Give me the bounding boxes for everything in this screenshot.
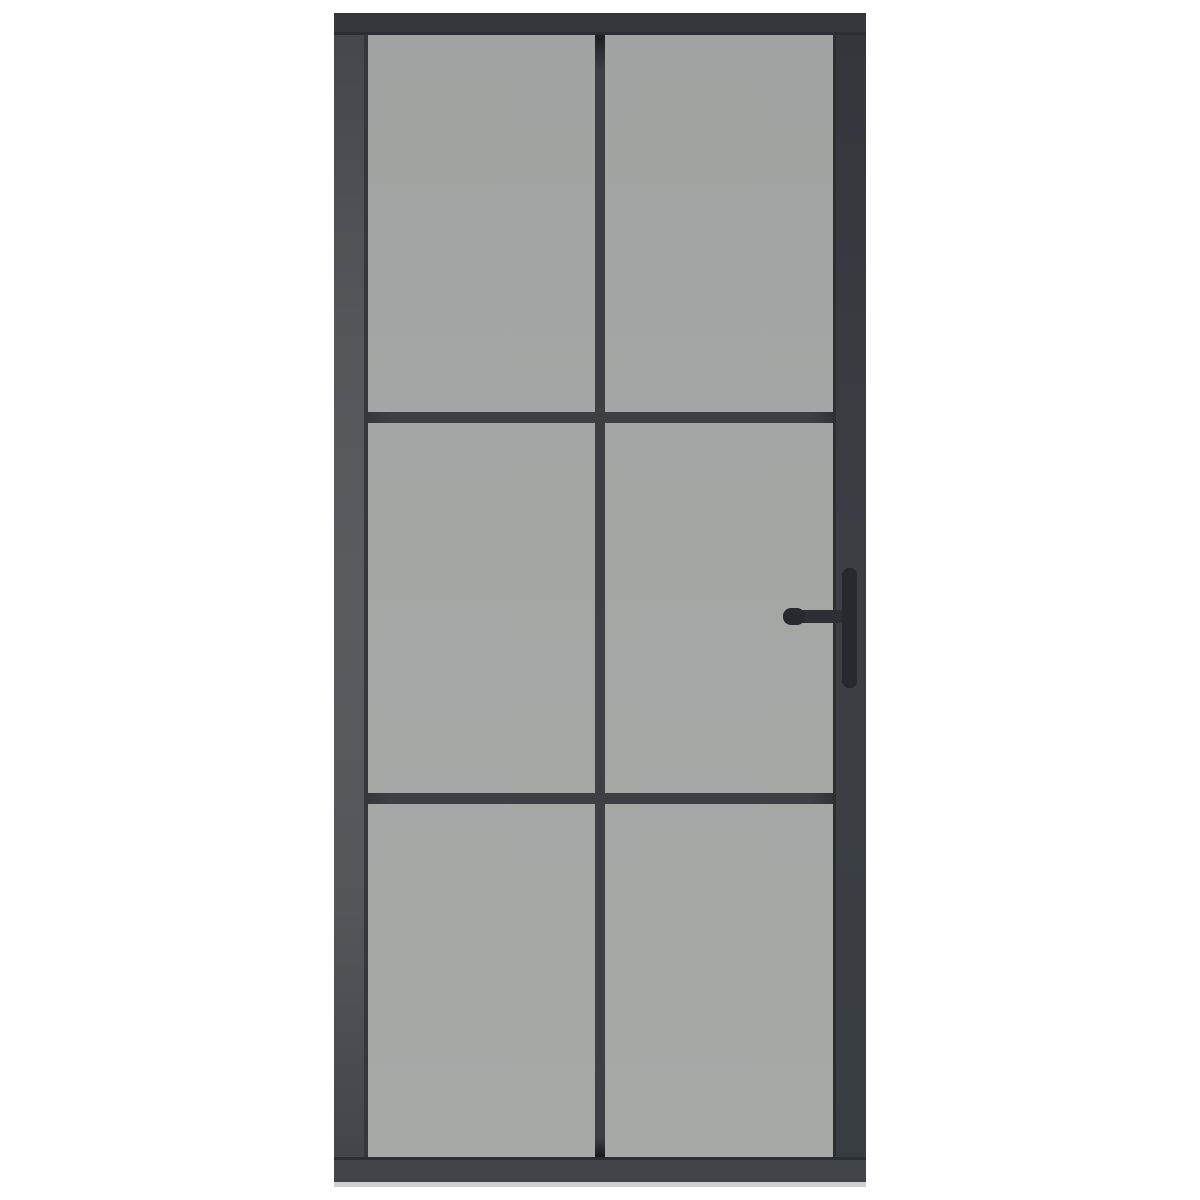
door-frame-left xyxy=(334,35,368,1157)
muntin-horizontal-divider-1 xyxy=(368,412,833,423)
muntin-horizontal-divider-2 xyxy=(368,793,833,804)
glass-pane xyxy=(368,35,595,412)
door-frame-bottom xyxy=(334,1157,866,1182)
door-handle-pull-bar xyxy=(842,568,857,688)
door-bottom-edge-highlight xyxy=(334,1182,866,1187)
glass-pane xyxy=(368,423,595,793)
product-image xyxy=(0,0,1200,1200)
glass-pane xyxy=(605,35,833,412)
door-handle-lever-tip xyxy=(783,608,805,625)
glass-door xyxy=(334,13,866,1182)
glass-pane xyxy=(368,804,595,1157)
muntin-vertical-divider xyxy=(595,35,605,1157)
door-frame-top xyxy=(334,13,866,35)
glass-area xyxy=(368,35,833,1157)
glass-pane xyxy=(605,804,833,1157)
